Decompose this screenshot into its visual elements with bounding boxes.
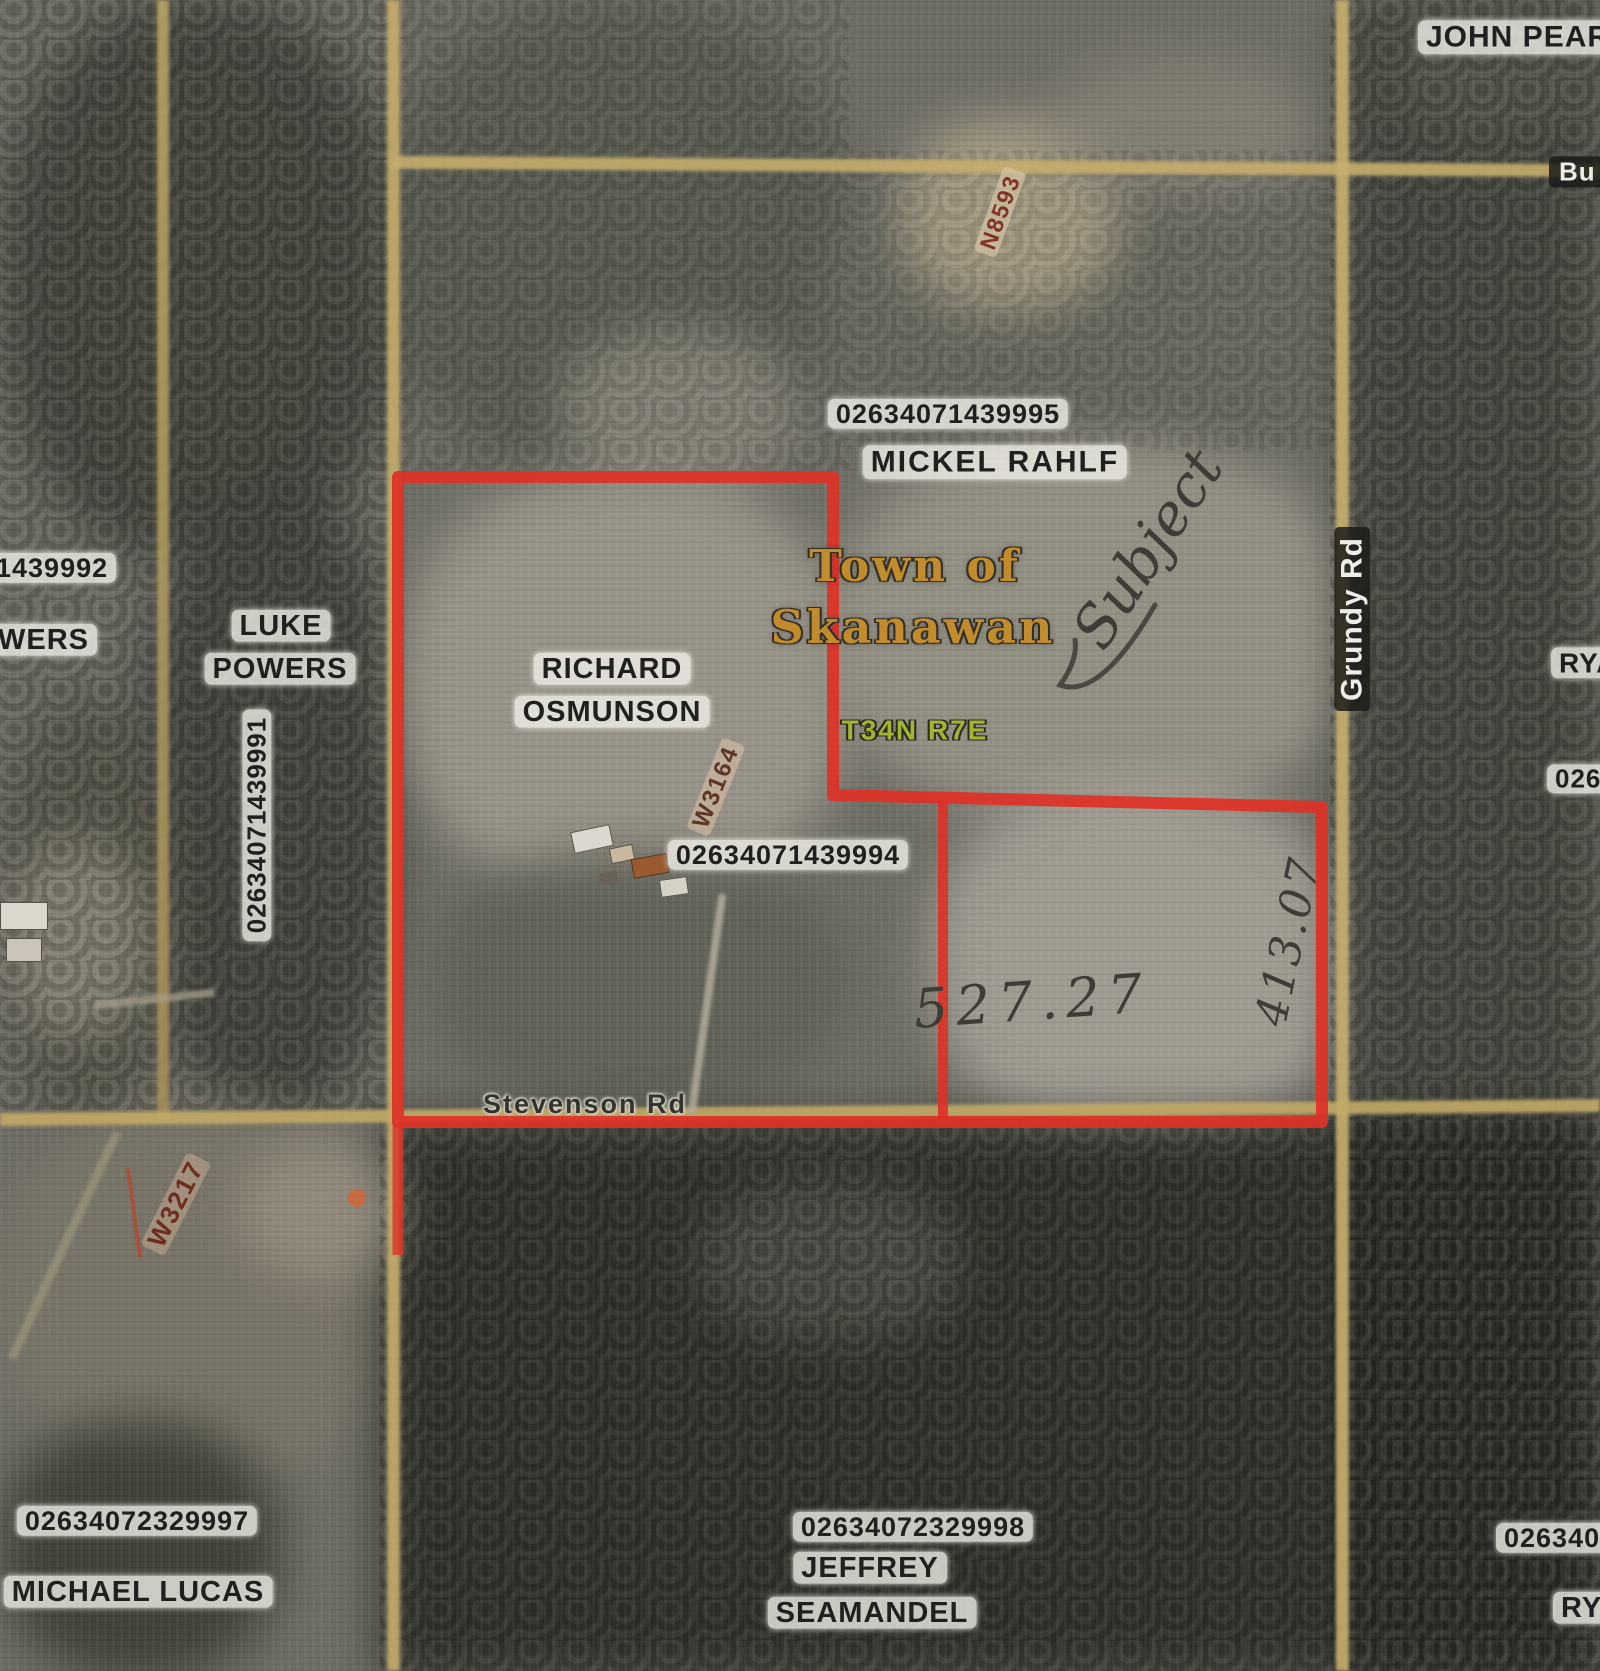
- parcel-number-right-partial: 026: [1547, 764, 1600, 793]
- owner-label-luke-line2: POWERS: [205, 653, 356, 685]
- owner-label-seamandel-line2: SEAMANDEL: [768, 1597, 977, 1629]
- road-label-stevenson: Stevenson Rd: [483, 1090, 687, 1118]
- town-label-line1: Town of: [809, 544, 1021, 590]
- owner-label-lucas: MICHAEL LUCAS: [4, 1576, 273, 1608]
- owner-label-osmunson-line1: RICHARD: [534, 653, 691, 685]
- owner-label-seamandel-line1: JEFFREY: [793, 1552, 947, 1584]
- parcel-number-lucas: 02634072329997: [17, 1506, 257, 1536]
- west-edge-building: [0, 902, 48, 930]
- road-label-bu-partial: Bu: [1549, 156, 1600, 187]
- road-west-vertical: [157, 0, 169, 1120]
- town-label-line2: Skanawan: [771, 603, 1056, 651]
- aerial-texture-patch: [400, 470, 850, 900]
- road-grundy-line: [1336, 0, 1349, 1671]
- aerial-texture-patch: [0, 1420, 280, 1671]
- owner-label-powers-partial: WERS: [0, 624, 97, 656]
- owner-label-rahlf: MICKEL RAHLF: [863, 445, 1127, 479]
- road-label-grundy: Grundy Rd: [1334, 527, 1370, 711]
- parcel-number-rahlf: 02634071439995: [828, 399, 1068, 429]
- parcel-number-osmunson-west: 02634071439991: [242, 709, 271, 941]
- aerial-texture-patch: [430, 850, 850, 1110]
- township-range-label: T34N R7E: [842, 715, 989, 744]
- owner-label-ryan-right: RYA: [1551, 647, 1600, 678]
- farm-building: [659, 876, 689, 898]
- road-townline-vertical: [387, 0, 400, 1671]
- west-edge-building: [6, 938, 42, 962]
- owner-label-osmunson-line2: OSMUNSON: [515, 696, 710, 728]
- parcel-number-bottom-right-partial: 026340: [1496, 1523, 1600, 1553]
- forest-texture: [380, 1120, 1600, 1671]
- aerial-map[interactable]: JOHN PEAR Bu N8593 02634071439995 MICKEL…: [0, 0, 1600, 1671]
- parcel-number-seamandel: 02634072329998: [793, 1512, 1033, 1542]
- owner-label-luke-line1: LUKE: [232, 610, 331, 642]
- parcel-number-powers-partial: 1439992: [0, 553, 116, 583]
- parcel-number-osmunson: 02634071439994: [668, 840, 908, 870]
- owner-label-ryan-bottom: RYA: [1553, 1592, 1600, 1624]
- aerial-texture-patch: [240, 1140, 400, 1280]
- forest-texture: [380, 0, 850, 470]
- owner-label-john-pear: JOHN PEAR: [1418, 20, 1600, 54]
